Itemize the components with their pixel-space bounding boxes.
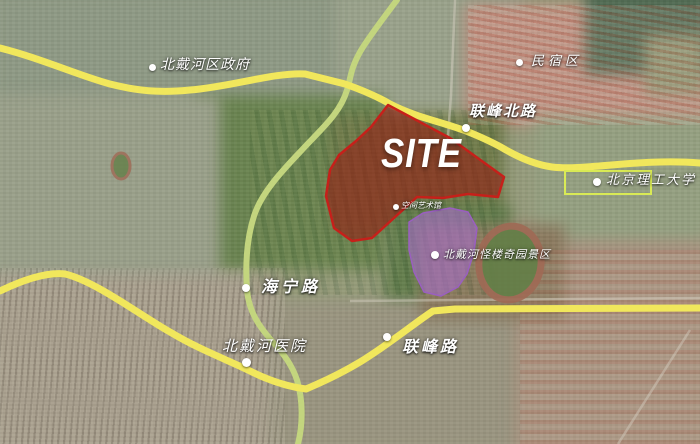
site-label: SITE — [381, 130, 462, 177]
label-art-museum: 空间艺术馆 — [401, 202, 441, 211]
label-haining-road: 海宁路 — [261, 278, 321, 296]
small-stadium-oval — [112, 153, 130, 179]
satellite-map: 北戴河区政府 民宿区 联峰北路 北京理工大学 空间艺术馆 北戴河怪楼奇园景区 海… — [0, 0, 700, 444]
minor-street-bottom-right — [618, 330, 690, 444]
marker-dot-bit-university — [593, 178, 601, 186]
marker-dot-haining-road — [242, 284, 250, 292]
label-homestay-area: 民宿区 — [531, 55, 582, 69]
marker-dot-lianfeng-north-road — [462, 124, 470, 132]
label-lianfeng-road: 联峰路 — [402, 338, 459, 356]
marker-dot-lianfeng-road — [383, 333, 391, 341]
major-road-lianfeng — [0, 274, 700, 389]
label-beidaihe-hospital: 北戴河医院 — [222, 338, 307, 355]
label-guailou-scenic: 北戴河怪楼奇园景区 — [443, 249, 551, 261]
marker-dot-beidaihe-hospital — [242, 358, 251, 367]
marker-dot-homestay-area — [516, 59, 523, 66]
stadium-oval — [474, 222, 546, 304]
label-bit-university: 北京理工大学 — [606, 174, 696, 188]
label-lianfeng-north-road: 联峰北路 — [469, 103, 537, 120]
marker-dot-guailou-scenic — [431, 251, 439, 259]
marker-dot-district-government — [149, 64, 156, 71]
marker-dot-art-museum — [393, 204, 399, 210]
label-district-government: 北戴河区政府 — [160, 58, 250, 73]
